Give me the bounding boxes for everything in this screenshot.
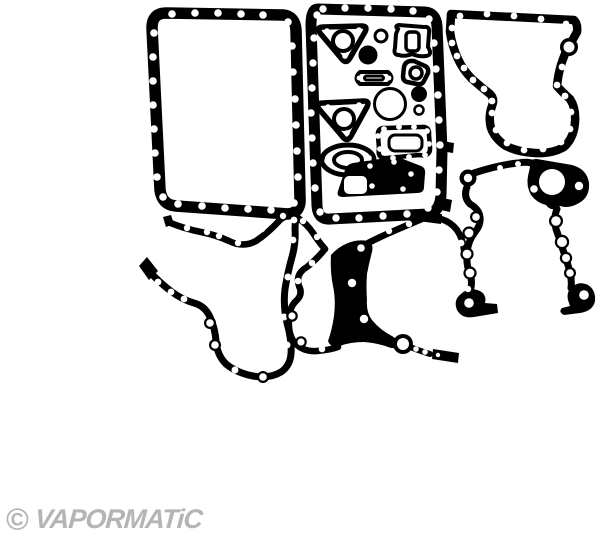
water-pump-gasket: [378, 127, 430, 158]
watermark: © VAPORMATiC: [6, 504, 202, 535]
crankcase-plate-gaskets: [139, 211, 464, 377]
oil-pan-gasket: [152, 13, 300, 214]
front-cover-foot-left: [456, 289, 498, 317]
brand-logo-text: VAPORMATiC: [34, 506, 203, 533]
black-seal-disc-2: [411, 86, 427, 102]
copyright-icon: ©: [6, 504, 29, 535]
gasket-set-illustration: [0, 0, 600, 542]
oblong-gasket: [357, 72, 392, 84]
gasket-trunk: [328, 240, 398, 348]
black-seal-disc-1: [359, 46, 378, 65]
pentagon-gasket: [403, 61, 428, 84]
front-cover-foot-right: [560, 283, 595, 315]
product-image: © VAPORMATiC: [0, 0, 600, 542]
